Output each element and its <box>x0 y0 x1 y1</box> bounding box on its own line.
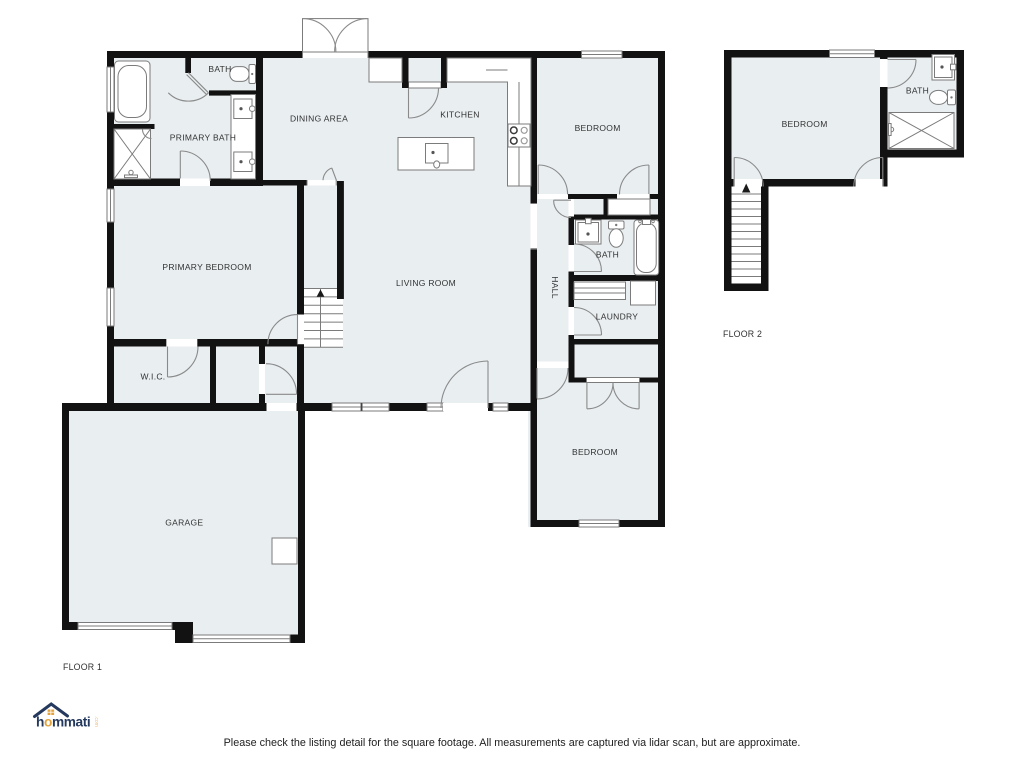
svg-text:BATH: BATH <box>208 64 231 74</box>
svg-text:PRIMARY BATH: PRIMARY BATH <box>170 133 236 143</box>
svg-text:FLOOR 2: FLOOR 2 <box>723 329 762 339</box>
svg-text:hommati: hommati <box>36 715 90 730</box>
svg-text:GARAGE: GARAGE <box>165 518 203 528</box>
svg-text:.com: .com <box>93 716 99 727</box>
svg-text:PRIMARY BEDROOM: PRIMARY BEDROOM <box>162 262 251 272</box>
svg-text:DINING AREA: DINING AREA <box>290 114 348 124</box>
svg-text:W.I.C.: W.I.C. <box>141 372 166 382</box>
svg-text:HALL: HALL <box>550 276 560 298</box>
svg-text:KITCHEN: KITCHEN <box>440 110 479 120</box>
svg-text:FLOOR 1: FLOOR 1 <box>63 662 102 672</box>
svg-text:LIVING ROOM: LIVING ROOM <box>396 278 456 288</box>
svg-text:BATH: BATH <box>906 86 929 96</box>
svg-text:BATH: BATH <box>596 250 619 260</box>
svg-text:BEDROOM: BEDROOM <box>575 123 621 133</box>
svg-text:LAUNDRY: LAUNDRY <box>596 312 639 322</box>
svg-text:Please check the listing detai: Please check the listing detail for the … <box>224 737 801 749</box>
svg-text:BEDROOM: BEDROOM <box>572 447 618 457</box>
svg-text:BEDROOM: BEDROOM <box>782 119 828 129</box>
